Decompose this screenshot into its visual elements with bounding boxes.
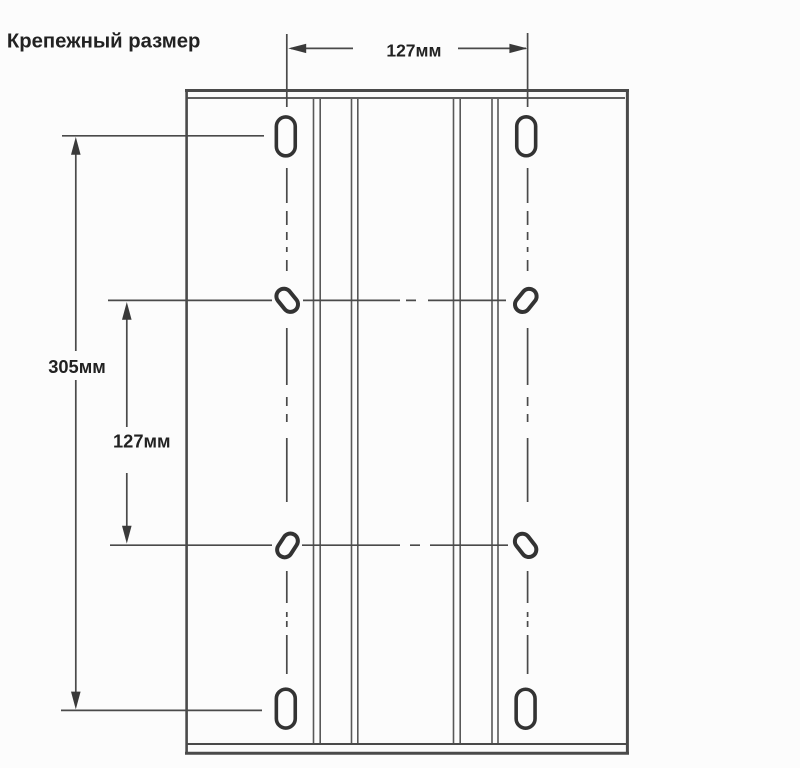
svg-text:127мм: 127мм [113,430,171,451]
svg-text:127мм: 127мм [386,40,441,60]
svg-text:305мм: 305мм [48,356,106,377]
svg-text:Крепежный размер: Крепежный размер [7,31,201,53]
